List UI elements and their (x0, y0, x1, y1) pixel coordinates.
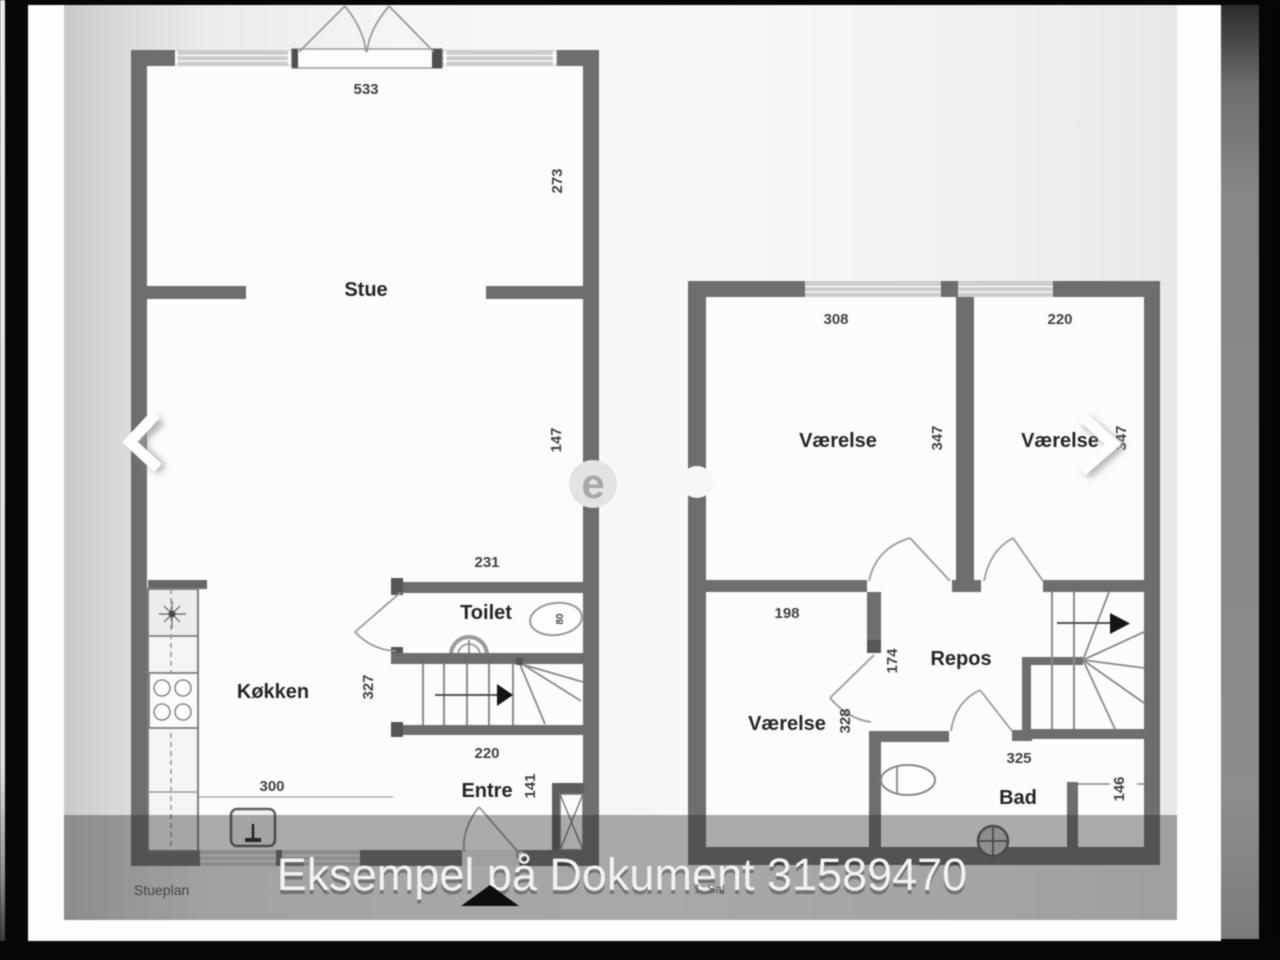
svg-text:327: 327 (360, 674, 377, 699)
svg-text:Repos: Repos (930, 648, 991, 670)
svg-text:174: 174 (884, 648, 901, 674)
svg-text:325: 325 (1006, 750, 1031, 767)
svg-text:220: 220 (474, 745, 499, 762)
svg-text:308: 308 (823, 311, 848, 328)
svg-text:533: 533 (353, 81, 378, 98)
svg-text:e: e (581, 460, 604, 507)
svg-text:Entre: Entre (461, 780, 512, 802)
svg-text:300: 300 (259, 778, 284, 795)
svg-text:80: 80 (555, 613, 566, 625)
svg-text:Køkken: Køkken (237, 681, 309, 703)
svg-text:141: 141 (522, 773, 539, 798)
svg-text:328: 328 (837, 708, 854, 733)
svg-text:198: 198 (774, 605, 799, 622)
svg-text:Værelse: Værelse (1021, 430, 1099, 452)
svg-text:1. Sal: 1. Sal (694, 882, 725, 896)
svg-text:231: 231 (474, 554, 499, 571)
svg-text:Stue: Stue (344, 279, 387, 301)
svg-text:273: 273 (549, 168, 566, 193)
svg-text:Bad: Bad (999, 787, 1037, 809)
svg-text:347: 347 (929, 425, 946, 450)
svg-text:147: 147 (548, 427, 565, 452)
svg-text:Stueplan: Stueplan (134, 882, 189, 898)
svg-text:146: 146 (1111, 776, 1128, 801)
svg-text:220: 220 (1047, 311, 1072, 328)
svg-text:Toilet: Toilet (460, 602, 512, 624)
svg-text:Værelse: Værelse (748, 713, 826, 735)
svg-text:Værelse: Værelse (799, 430, 877, 452)
svg-text:Eksempel på Dokument 31589470: Eksempel på Dokument 31589470 (277, 849, 967, 900)
